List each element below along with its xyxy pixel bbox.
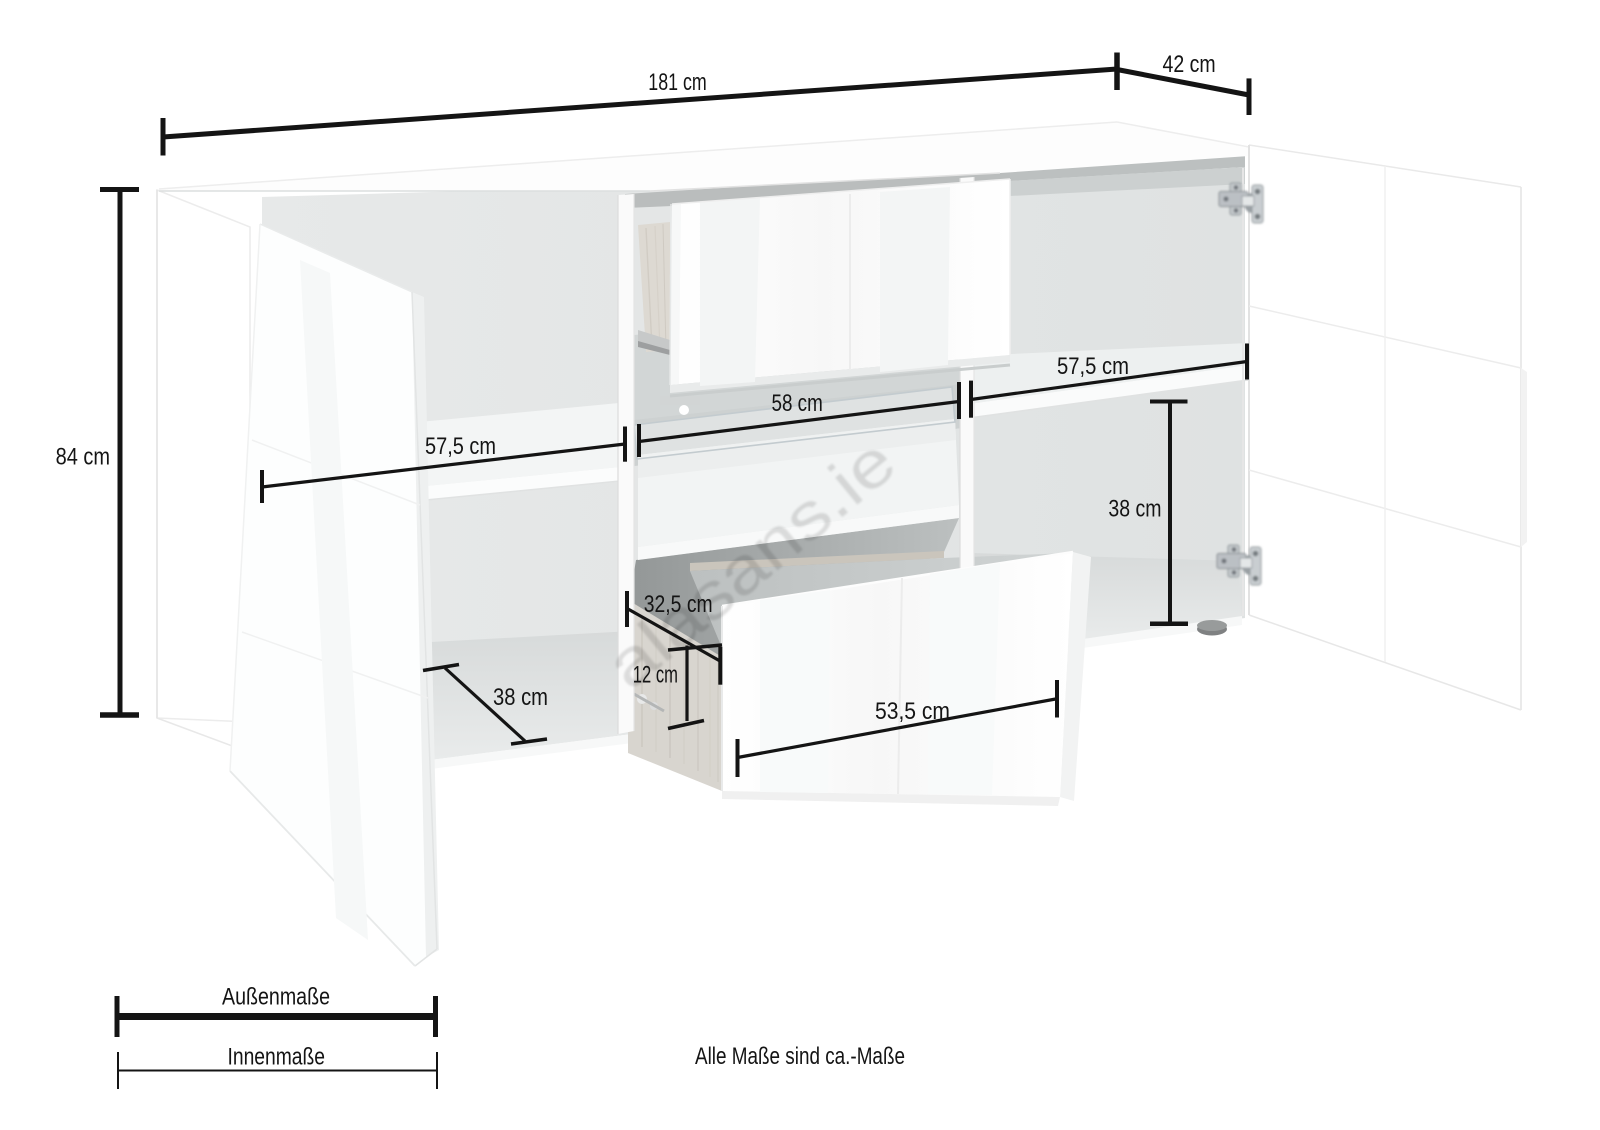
svg-text:32,5 cm: 32,5 cm [644,591,713,618]
svg-text:Innenmaße: Innenmaße [228,1044,326,1071]
svg-text:53,5 cm: 53,5 cm [875,698,950,725]
svg-text:57,5 cm: 57,5 cm [1057,353,1129,380]
svg-text:Außenmaße: Außenmaße [222,984,330,1011]
svg-text:42 cm: 42 cm [1163,51,1216,78]
svg-text:181 cm: 181 cm [648,69,706,96]
svg-text:57,5 cm: 57,5 cm [425,433,496,460]
svg-text:58 cm: 58 cm [772,390,823,417]
svg-text:38 cm: 38 cm [493,684,548,711]
svg-text:Alle Maße sind ca.-Maße: Alle Maße sind ca.-Maße [695,1043,905,1070]
svg-text:12 cm: 12 cm [633,662,678,689]
svg-text:84 cm: 84 cm [56,443,110,470]
svg-text:38 cm: 38 cm [1108,496,1161,523]
